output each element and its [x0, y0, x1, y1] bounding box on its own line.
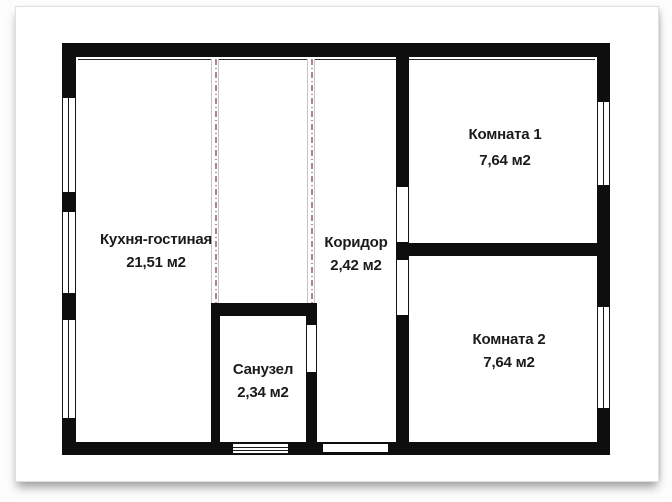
room-name: Кухня-гостиная	[100, 228, 212, 251]
partition-dash-line	[311, 59, 313, 303]
window-left-2	[62, 212, 76, 293]
wall-corridor-rooms	[396, 57, 409, 442]
wall-bathroom-left	[211, 316, 220, 442]
room-area: 2,42 м2	[324, 254, 387, 277]
floor-plan: Кухня-гостиная 21,51 м2 Коридор 2,42 м2 …	[0, 0, 672, 502]
window-room2	[597, 307, 610, 408]
floor-plan-photo: Кухня-гостиная 21,51 м2 Коридор 2,42 м2 …	[0, 0, 672, 502]
wall-between-rooms	[409, 243, 597, 256]
wall-exterior-top	[62, 43, 610, 57]
room-name: Санузел	[233, 358, 293, 381]
door-room1	[396, 187, 409, 242]
room-area: 2,34 м2	[233, 381, 293, 404]
room-name: Комната 1	[468, 122, 541, 148]
room-name: Коридор	[324, 231, 387, 254]
window-room1	[597, 102, 610, 185]
wall-inner-face-line	[78, 59, 595, 60]
window-bathroom	[233, 443, 288, 454]
window-left-1	[62, 98, 76, 192]
door-bathroom	[306, 325, 317, 372]
partition-dashed-1	[211, 59, 219, 303]
room-area: 21,51 м2	[100, 251, 212, 274]
room-label-room1: Комната 1 7,64 м2	[468, 122, 541, 174]
room-area: 7,64 м2	[468, 148, 541, 174]
partition-dashed-2	[307, 59, 315, 303]
room-label-kitchen: Кухня-гостиная 21,51 м2	[100, 228, 212, 274]
window-left-3	[62, 320, 76, 418]
room-label-corridor: Коридор 2,42 м2	[324, 231, 387, 277]
room-area: 7,64 м2	[472, 351, 545, 374]
door-room2	[396, 260, 409, 315]
room-label-room2: Комната 2 7,64 м2	[472, 328, 545, 374]
door-entrance	[323, 444, 388, 452]
room-label-bathroom: Санузел 2,34 м2	[233, 358, 293, 404]
room-name: Комната 2	[472, 328, 545, 351]
wall-bathroom-top	[211, 303, 317, 316]
partition-dash-line	[215, 59, 217, 303]
